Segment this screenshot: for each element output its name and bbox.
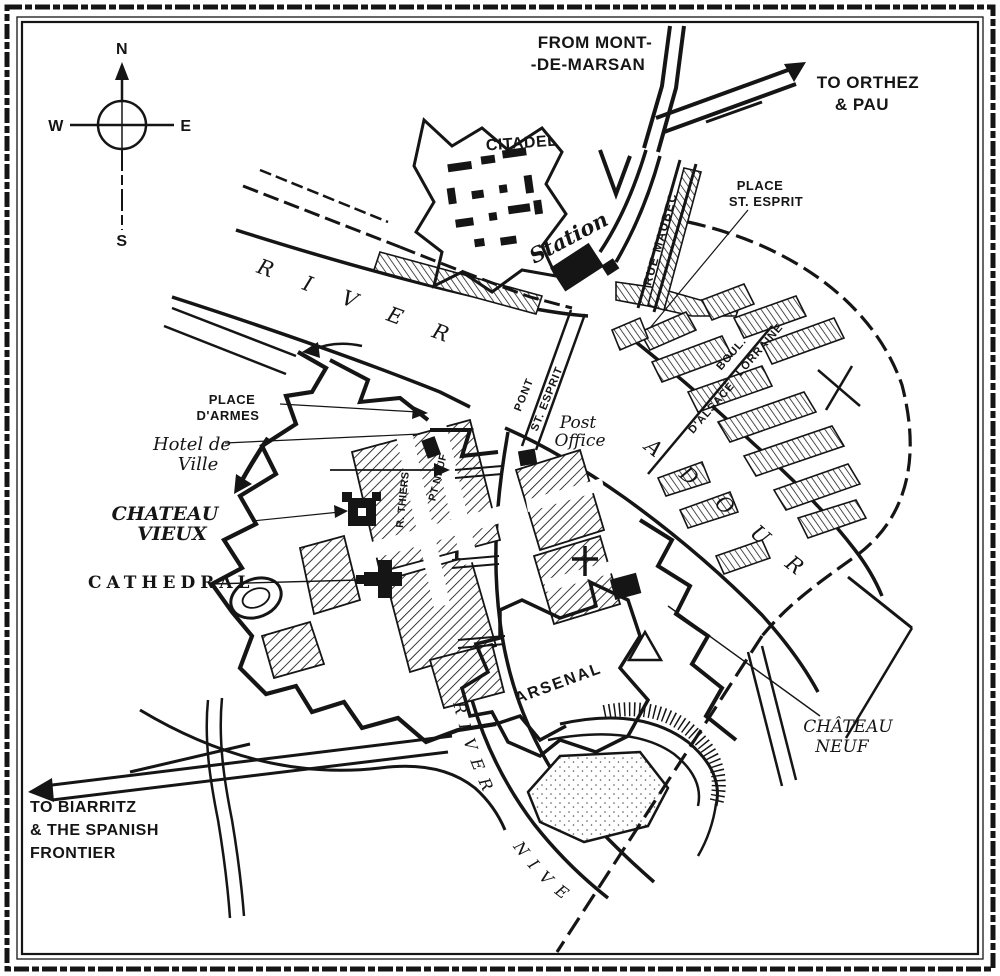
label-chateau-neuf-2: NEUF (814, 737, 870, 757)
compass-s: S (116, 233, 127, 250)
arrow-from-mont (600, 150, 630, 194)
label-hotel-de-ville-1: Hotel de (152, 434, 231, 455)
label-from-mont-1: FROM MONT- (538, 33, 653, 52)
petit-bayonne-blocks (516, 450, 620, 624)
city-block (300, 536, 360, 614)
label-cathedral: CATHEDRAL (88, 573, 254, 593)
label-place-st-esprit-2: ST. ESPRIT (729, 194, 803, 209)
compass-w: W (48, 118, 64, 135)
chateau-neuf-building (610, 573, 642, 600)
label-arsenal: ARSENAL (513, 660, 605, 707)
label-post-office-1: Post (559, 413, 597, 433)
label-river-nive-word2: NIVE (509, 837, 580, 909)
label-to-biarritz-2: & THE SPANISH (30, 822, 159, 839)
label-citadel: CITADEL (485, 133, 558, 155)
label-from-mont-2: -DE-MARSAN (531, 55, 646, 74)
citadel-inner-works (442, 146, 546, 252)
label-hotel-de-ville-2: Ville (178, 454, 219, 475)
compass-rose: N W E S (48, 41, 191, 250)
city-block (640, 312, 696, 350)
quay-strip (374, 252, 542, 314)
label-post-office-2: Office (555, 431, 606, 451)
label-place-darmes-2: D'ARMES (197, 408, 260, 423)
city-block (798, 500, 866, 538)
label-to-biarritz-1: TO BIARRITZ (30, 799, 137, 816)
label-chateau-vieux-1: CHATEAU (112, 503, 220, 525)
compass-n: N (116, 41, 128, 58)
city-block (262, 622, 324, 678)
label-place-st-esprit-1: PLACE (737, 178, 784, 193)
label-to-biarritz-3: FRONTIER (30, 845, 116, 862)
label-place-darmes-1: PLACE (209, 392, 256, 407)
bayonne-city-map: N W E S FROM MONT- -DE-MARSAN TO ORTHEZ … (0, 0, 1000, 976)
post-office-building (518, 449, 537, 467)
label-chateau-neuf-1: CHÂTEAU (803, 716, 893, 737)
label-chateau-vieux-2: VIEUX (137, 523, 208, 545)
label-pont: PONT (512, 377, 536, 414)
chateau-vieux-building (342, 492, 381, 526)
city-block (744, 426, 844, 476)
compass-e: E (180, 118, 191, 135)
label-to-orthez-2: & PAU (835, 95, 889, 114)
label-to-orthez-1: TO ORTHEZ (817, 73, 919, 92)
